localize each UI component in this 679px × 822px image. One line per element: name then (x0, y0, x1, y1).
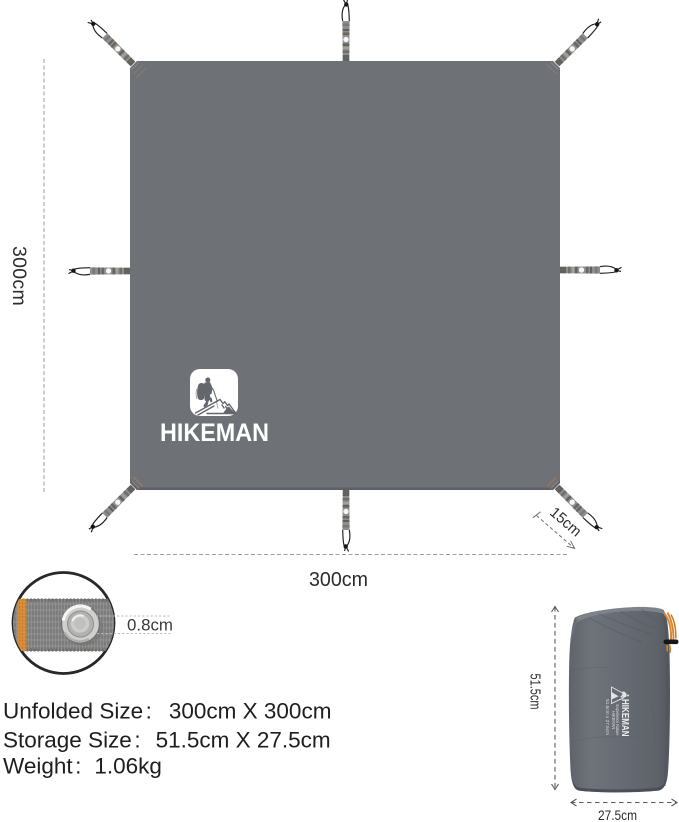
svg-text:HIKEMAN: HIKEMAN (619, 699, 631, 737)
svg-text:0.8cm: 0.8cm (127, 617, 173, 635)
svg-text:300cm: 300cm (309, 569, 368, 591)
svg-text:51.5cm x 27.5cm: 51.5cm x 27.5cm (605, 699, 610, 735)
svg-text:Weight:1.06kg: Weight:1.06kg (3, 754, 162, 779)
svg-text:HIKEMAN: HIKEMAN (611, 711, 616, 730)
svg-text:Storage Size:51.5cm X 27.5cm: Storage Size:51.5cm X 27.5cm (3, 728, 331, 753)
svg-text:27.5cm: 27.5cm (598, 807, 637, 822)
svg-text:HIKEMAN: HIKEMAN (160, 419, 269, 447)
svg-text:Unfolded Size:300cm X 300cm: Unfolded Size:300cm X 300cm (3, 699, 331, 724)
svg-text:300cm: 300cm (8, 246, 30, 306)
svg-text:51.5cm: 51.5cm (527, 674, 544, 710)
